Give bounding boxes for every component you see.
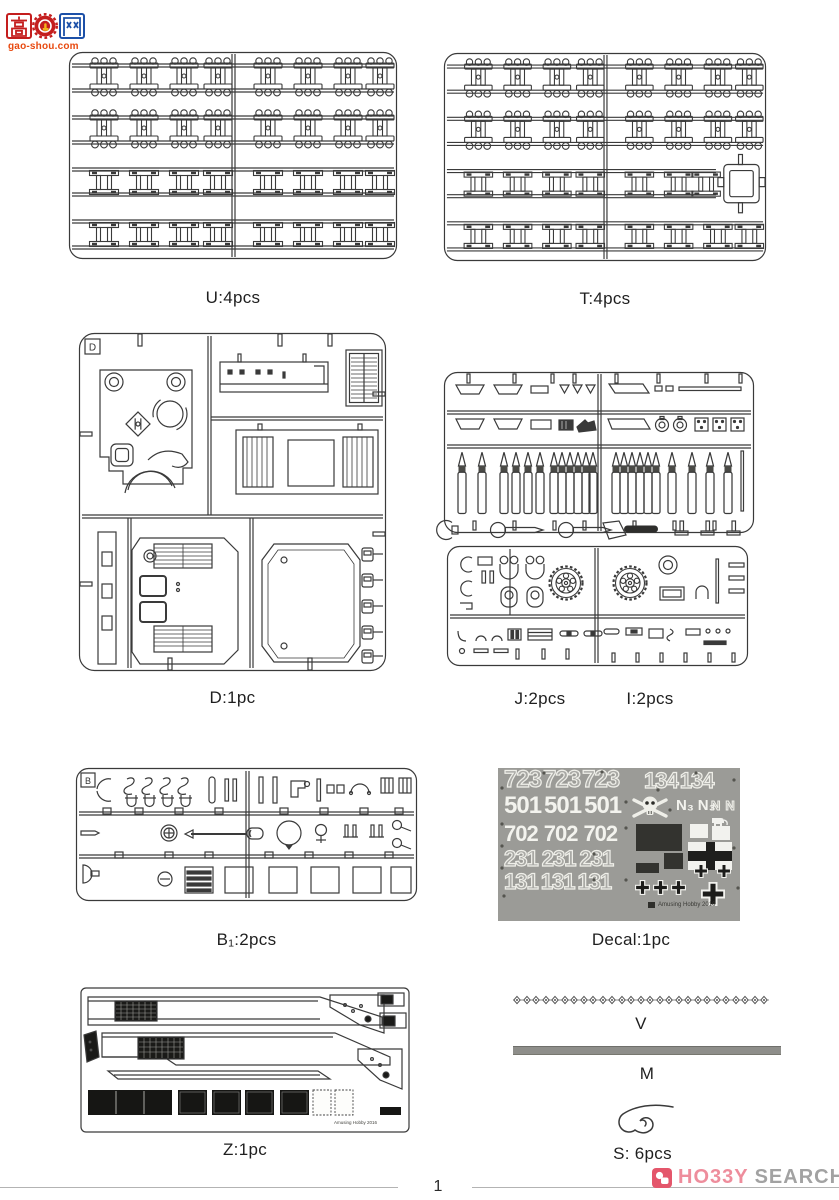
- sprue-u-drawing: [68, 51, 398, 260]
- footer-rule-left: [0, 1187, 398, 1188]
- label-part-m: M: [513, 1064, 781, 1084]
- decal-fine-print: Amusing Hobby 2016: [658, 902, 715, 908]
- b1-row3-parts: [83, 865, 411, 893]
- z-side-plates: [330, 993, 406, 1089]
- decal-maker-mark: [648, 902, 655, 908]
- label-decal: Decal:1pc: [510, 930, 752, 950]
- drive-sprocket-right: [614, 567, 647, 600]
- label-sprue-z: Z:1pc: [80, 1140, 410, 1160]
- d-part-glacis-plate: [100, 370, 192, 493]
- ji-small-parts-row2: [456, 417, 744, 433]
- label-part-s: S: 6pcs: [575, 1144, 710, 1164]
- d-part-engine-deck: [236, 424, 378, 494]
- z-fine-print: Amusing Hobby 2016: [334, 1120, 378, 1125]
- ji-tools-strip-drawing: [428, 516, 755, 544]
- hobby-search-logo-icon: [652, 1168, 672, 1188]
- sprue-d-drawing: D: [78, 332, 387, 672]
- sprue-z-drawing: Amusing Hobby 2016: [80, 987, 410, 1133]
- label-sprue-t: T:4pcs: [443, 289, 767, 309]
- spring-part-drawing: [607, 1102, 677, 1142]
- z-mesh-squares: [88, 1090, 401, 1115]
- z-fender-strips: [84, 997, 390, 1079]
- b1-row1-parts: [97, 777, 411, 807]
- decal-registration-dots: [498, 768, 740, 921]
- metal-rod-part: [513, 1046, 781, 1055]
- ji-lower-left-parts: [460, 556, 544, 609]
- ji-lower-right-parts: [659, 556, 744, 603]
- page-number: 1: [404, 1178, 472, 1196]
- gear-thumbs-up-icon: [33, 14, 57, 38]
- label-sprue-d: D:1pc: [78, 688, 387, 708]
- d-part-hull-roof: [132, 538, 238, 664]
- label-sprue-u: U:4pcs: [68, 288, 398, 308]
- label-sprue-j: J:2pcs: [460, 689, 620, 709]
- label-part-v: V: [513, 1014, 769, 1034]
- t-sprue-special-part: [718, 154, 765, 212]
- ji-lower-bottom-row: [458, 628, 735, 662]
- d-part-grille-small: [346, 350, 382, 406]
- drive-sprocket-left: [550, 567, 583, 600]
- brand-hobby: HO33Y: [678, 1166, 749, 1189]
- label-sprue-b1: B₁:2pcs: [75, 930, 418, 950]
- sprue-ji-lower-drawing: [446, 545, 749, 667]
- decal-sheet: 723 723 723 134 134 501 501 501 N₃ N₃ N: [498, 768, 740, 921]
- d-part-side-strip: [98, 532, 116, 664]
- d-parts-small-clips: [362, 548, 383, 663]
- sprue-b1-drawing: B: [75, 767, 418, 902]
- label-sprue-i: I:2pcs: [610, 689, 690, 709]
- sprue-t-drawing: [443, 52, 767, 262]
- chain-part-drawing: [513, 994, 769, 1006]
- hobby-search-watermark: HO33Y SEARCH: [652, 1166, 839, 1189]
- d-part-hatch-strip: [220, 354, 328, 392]
- brand-search: SEARCH: [755, 1166, 839, 1189]
- sprue-letter-d: D: [89, 343, 96, 354]
- sprue-ji-upper-drawing: [443, 371, 755, 534]
- d-part-rear-plate: [262, 544, 360, 662]
- sprue-letter-b: B: [85, 776, 91, 786]
- gao-shou-watermark: gao-shou.com: [6, 8, 106, 56]
- instruction-page: gao-shou.com U:4pcs: [0, 0, 839, 1200]
